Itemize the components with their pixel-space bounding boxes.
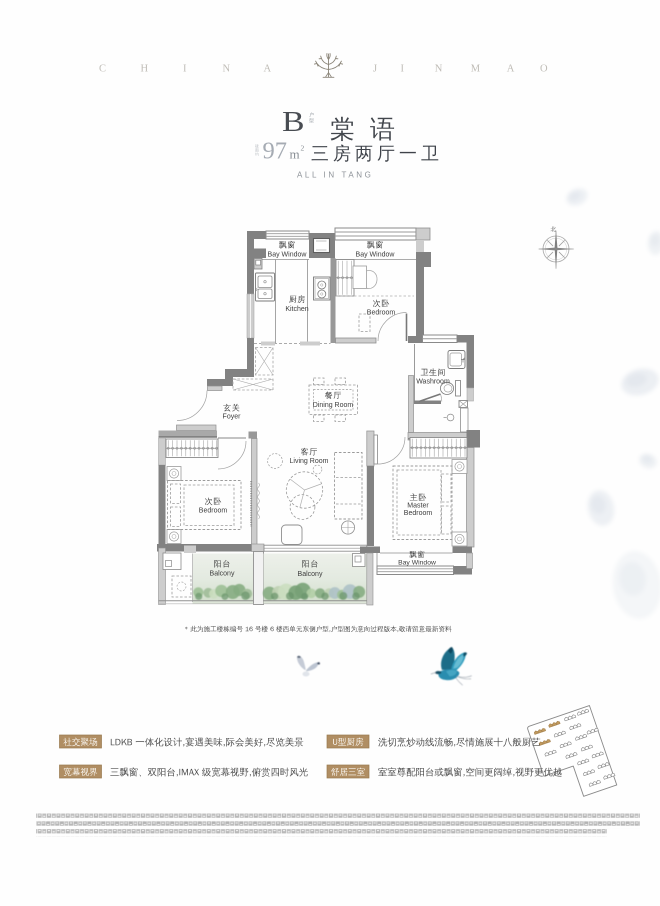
svg-text:Bay Window: Bay Window [398, 560, 436, 567]
svg-text:Foyer: Foyer [223, 414, 242, 421]
svg-text:Master: Master [407, 503, 429, 510]
svg-text:C: C [99, 64, 106, 75]
svg-text:A: A [507, 64, 515, 75]
svg-text:Bedroom: Bedroom [199, 508, 228, 515]
svg-text:Bedroom: Bedroom [367, 310, 396, 317]
svg-text:I: I [401, 64, 405, 75]
svg-text:Bedroom: Bedroom [404, 510, 433, 517]
svg-text:M: M [471, 64, 481, 75]
svg-text:m: m [290, 147, 300, 162]
svg-text:O: O [540, 64, 548, 75]
svg-text:2: 2 [301, 144, 305, 153]
svg-text:Living Room: Living Room [290, 458, 329, 465]
svg-text:ALL IN TANG: ALL IN TANG [297, 171, 373, 180]
svg-text:N: N [435, 64, 443, 75]
svg-text:J: J [373, 64, 377, 75]
svg-text:Washroom: Washroom [416, 379, 450, 386]
svg-text:A: A [264, 64, 272, 75]
svg-text:Bay Window: Bay Window [268, 252, 308, 259]
svg-text:B: B [282, 107, 305, 138]
svg-text:N: N [223, 64, 231, 75]
svg-text:Dining Room: Dining Room [313, 402, 354, 409]
svg-text:Balcony: Balcony [298, 571, 323, 578]
svg-text:H: H [141, 64, 149, 75]
svg-text:I: I [183, 64, 187, 75]
svg-text:Bay Window: Bay Window [356, 252, 396, 259]
svg-text:97: 97 [263, 138, 288, 165]
svg-text:Kitchen: Kitchen [285, 306, 308, 313]
svg-text:Balcony: Balcony [210, 571, 235, 578]
